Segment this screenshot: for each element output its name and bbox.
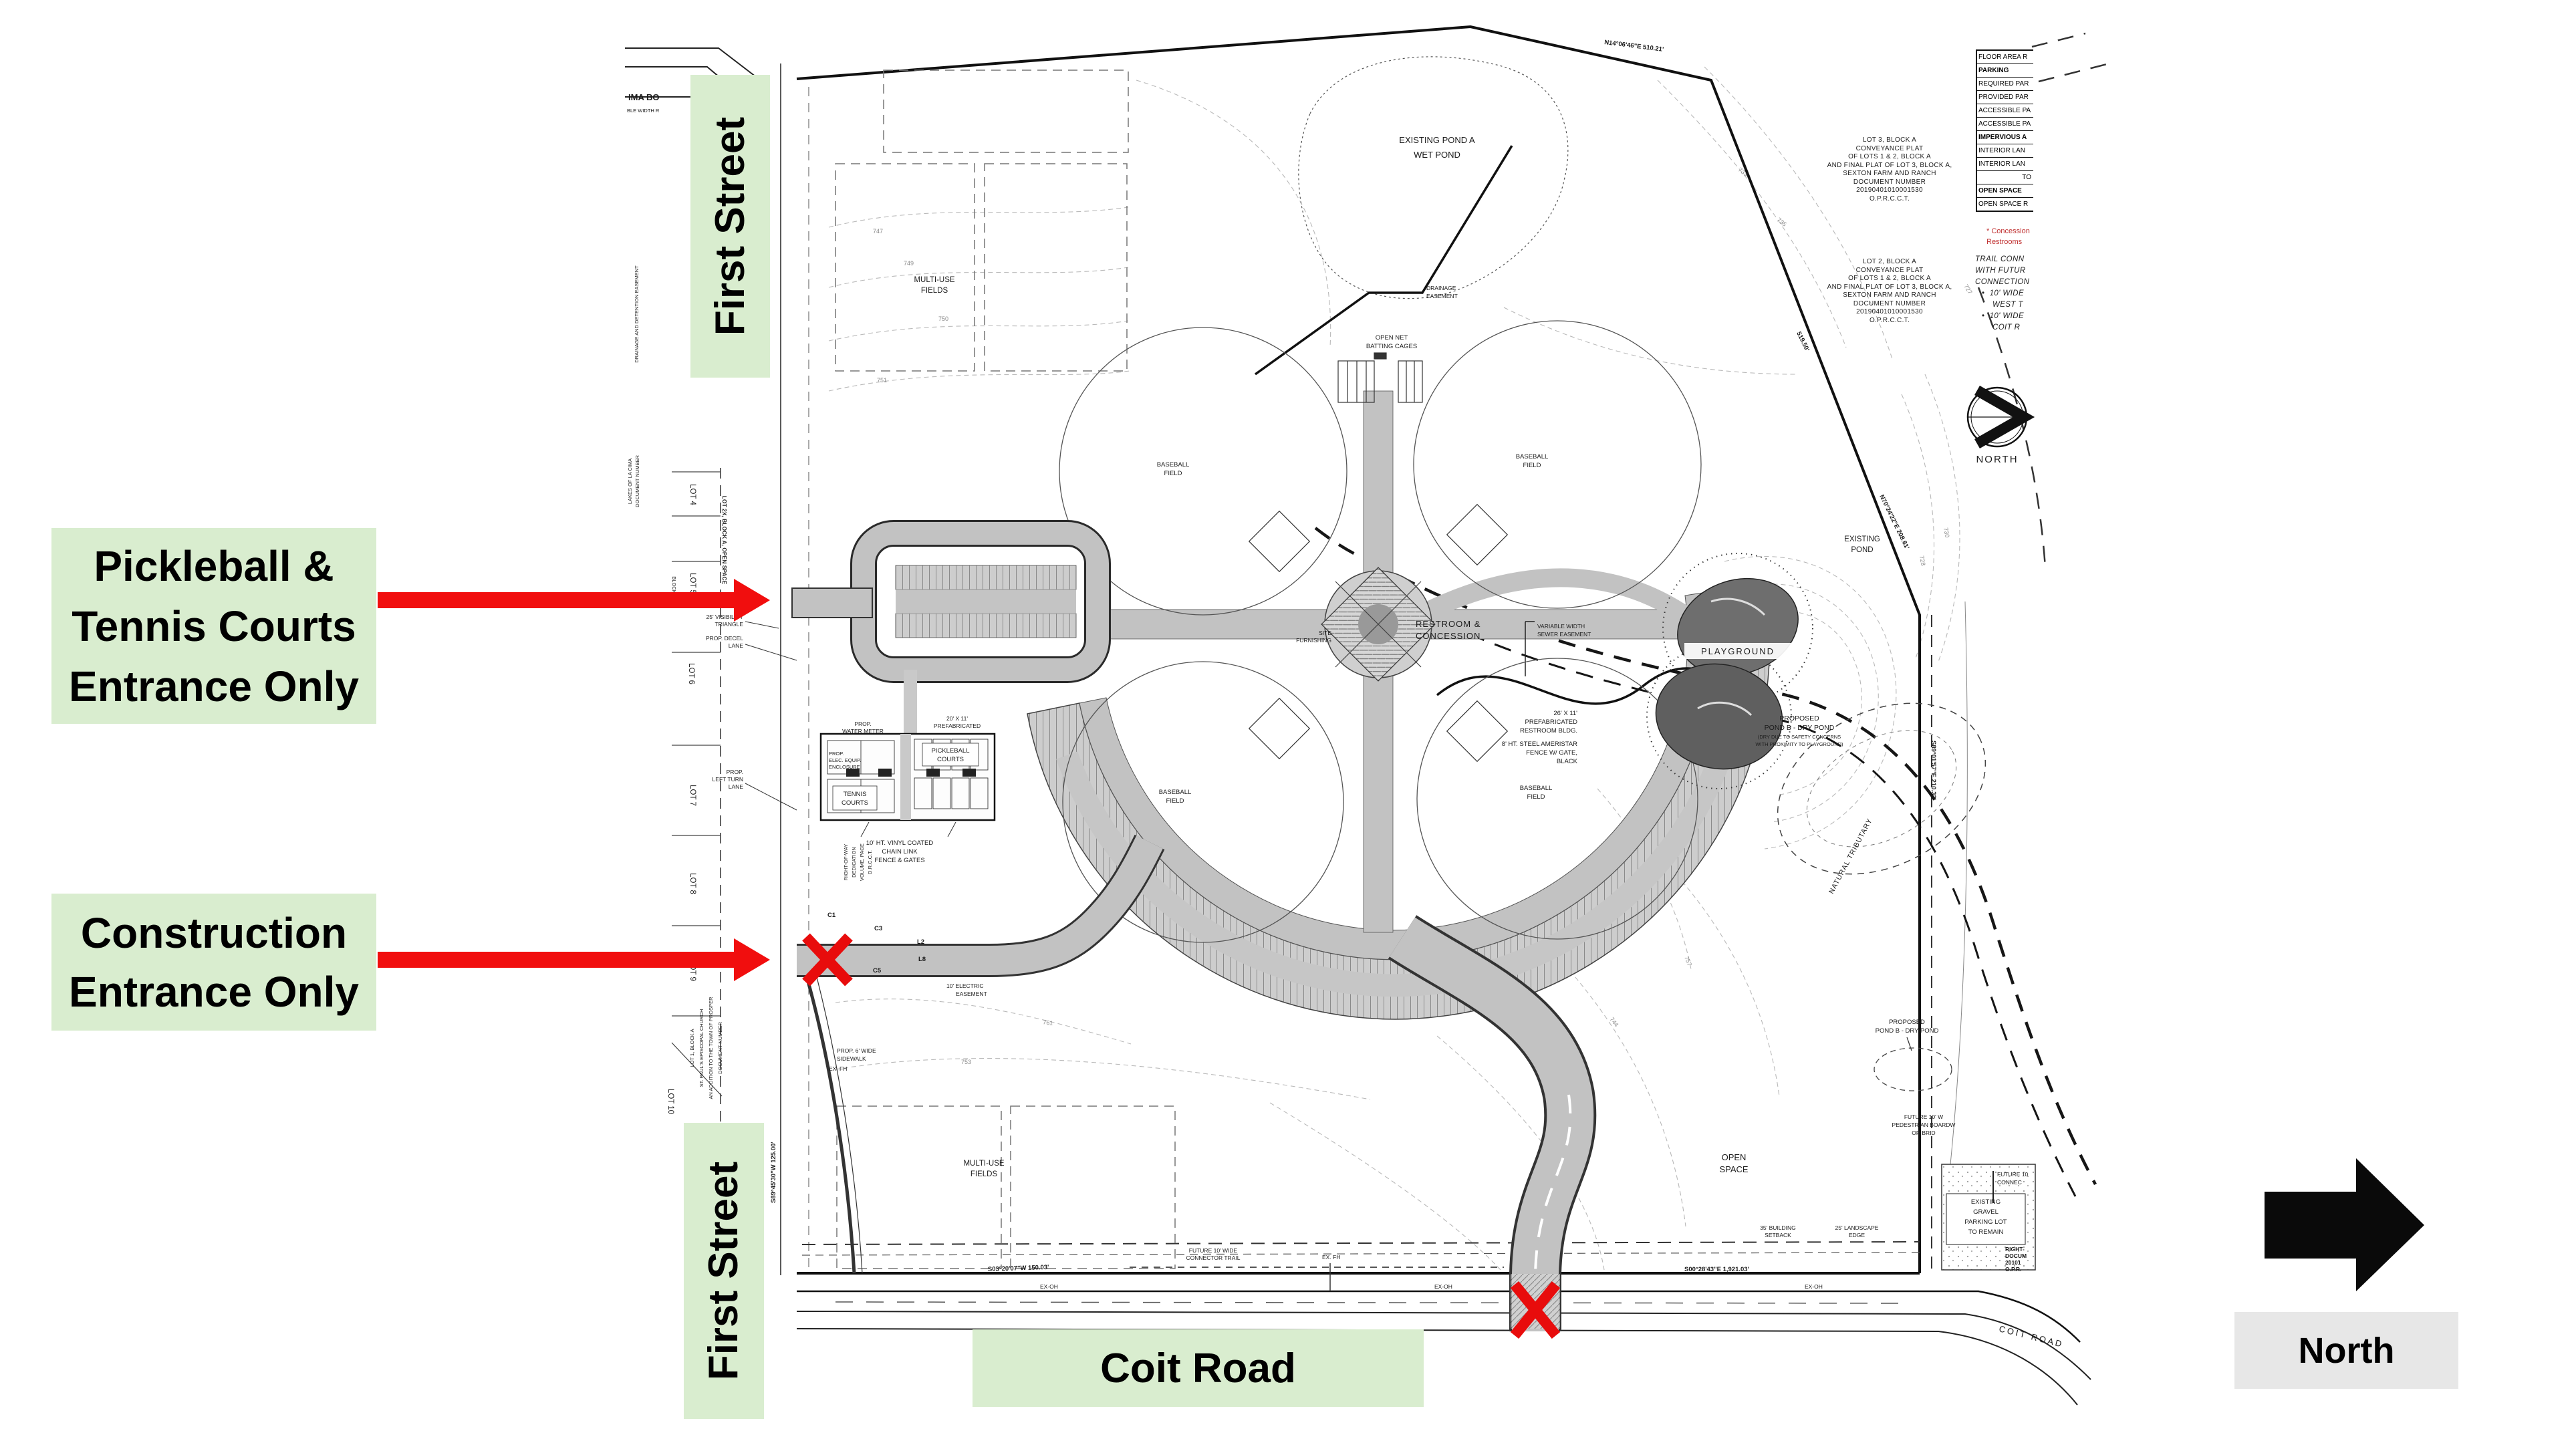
row-dedication-label: RIGHT-OF-WAY	[843, 844, 849, 881]
multi-use-label: FIELDS	[921, 287, 948, 295]
row-dedication-label: VOLUME, PAGE	[859, 843, 865, 881]
baseball-field-label: FIELD	[1164, 470, 1182, 477]
block-label: BLOCK	[671, 576, 677, 593]
boardwalk-note: OR BRID	[1912, 1130, 1935, 1136]
ameristar-fence-note: 8' HT. STEEL AMERISTAR	[1502, 741, 1577, 748]
tennis-courts-label: COURTS	[842, 799, 868, 807]
landscape-edge-label: 25' LANDSCAPE	[1835, 1224, 1879, 1231]
existing-pond-label: POND	[1851, 546, 1873, 554]
water-meter-note: WATER METER	[842, 728, 884, 735]
contour-label: 750	[938, 315, 948, 322]
pond-b-label: (DRY DUE TO SAFETY CONCERNS	[1758, 734, 1841, 740]
coit-road-label: Coit Road	[973, 1329, 1424, 1407]
building-setback-label: 35' BUILDING	[1760, 1224, 1796, 1231]
ameristar-fence-note: FENCE W/ GATE,	[1526, 749, 1577, 757]
lakes-label: DOCUMENT NUMBER	[634, 455, 640, 507]
existing-pond-east: EXISTING POND NATURAL TRIBUTARY	[1827, 535, 1880, 895]
restroom-bldg-note: RESTROOM BLDG.	[1520, 727, 1577, 735]
tennis-pickleball-courts: TENNIS COURTS PICKLEBALL COURTS PROP. WA…	[821, 715, 995, 864]
sidewalk-note: PROP. 6' WIDE	[837, 1047, 876, 1054]
lot-label: LOT 4	[688, 484, 696, 505]
contour-label: 757	[1683, 955, 1693, 967]
contour-label: 727	[1962, 283, 1973, 295]
row-dedication-label: DEDICATION	[851, 847, 857, 878]
table-row: PARKING	[1977, 64, 2033, 78]
baseball-field-label: BASEBALL	[1520, 785, 1553, 792]
restroom-concession-label: RESTROOM &	[1416, 619, 1480, 629]
table-row: REQUIRED PAR	[1977, 78, 2033, 91]
future-connector-note: FUTURE 10' WIDE	[1189, 1247, 1238, 1254]
boardwalk-note: FUTURE 10' W	[1904, 1113, 1943, 1120]
north-label: North	[2234, 1312, 2458, 1389]
lot-label: LOT 5	[688, 573, 696, 594]
open-space-label: SPACE	[1719, 1164, 1748, 1174]
future-connector-note: CONNECTOR TRAIL	[1186, 1255, 1241, 1261]
fence-note: CHAIN LINK	[882, 848, 918, 855]
restroom-bldg-note: PREFABRICATED	[1525, 718, 1578, 726]
contour-label: 728	[1918, 555, 1926, 567]
ex-oh-label: EX-OH	[1040, 1283, 1058, 1290]
gravel-lot-label: TO REMAIN	[1968, 1228, 2004, 1236]
table-row: OPEN SPACE	[1977, 184, 2033, 198]
ex-oh-label: EX-OH	[1434, 1283, 1452, 1290]
site-plan-drawing: 747 749 750 751 733 735 730 728 727 744 …	[0, 0, 2576, 1449]
contour-label: 735	[1776, 217, 1788, 228]
row-dedication-label: D.R.C.C.T.	[867, 850, 873, 874]
concession-note: * Concession Restrooms	[1986, 226, 2030, 247]
multi-use-label: MULTI-USE	[963, 1160, 1004, 1168]
elec-enclosure-note: PROP.	[829, 751, 844, 757]
landscape-edge-label: EDGE	[1849, 1232, 1865, 1238]
fire-hydrant-note: EX. FH	[829, 1065, 847, 1072]
future-connect-note: FUTURE 10	[1997, 1171, 2029, 1178]
natural-tributary-label: NATURAL TRIBUTARY	[1827, 817, 1874, 895]
pickleball-entrance-drive	[792, 588, 872, 618]
pickleball-entrance-label: Pickleball & Tennis Courts Entrance Only	[51, 528, 376, 724]
table-row: TO	[1977, 171, 2033, 184]
baseball-field-ne	[1414, 321, 1701, 608]
courts-parking	[792, 533, 1098, 734]
bearing-s89w: S89°45'30"W 125.00'	[770, 1142, 777, 1203]
proposed-pond-south: PROPOSED POND B - DRY POND	[1874, 1019, 1952, 1091]
curve-label: C1	[827, 912, 836, 919]
contour-label: 751	[877, 377, 887, 384]
drainage-easement-label: DRAINAGE	[1426, 285, 1456, 291]
site-furnishing-label: FURNISHING	[1296, 637, 1331, 644]
contour-label: 761	[1043, 1019, 1053, 1027]
table-row: INTERIOR LAN	[1977, 144, 2033, 158]
partial-text-top-left: BLE WIDTH R	[627, 108, 660, 114]
restroom-bldg-note: 26' X 11'	[1553, 710, 1577, 717]
curve-label: L2	[917, 938, 924, 946]
contour-label: 749	[904, 260, 914, 267]
bearing-519: 519.50'	[1795, 330, 1811, 352]
gravel-lot-label: PARKING LOT	[1964, 1218, 2007, 1226]
north-symbol-icon: NORTH	[1968, 388, 2027, 465]
sewer-easement-label: SEWER EASEMENT	[1537, 631, 1591, 638]
site-plan-slide: 747 749 750 751 733 735 730 728 727 744 …	[0, 0, 2576, 1449]
bearing-s03: S03°20'07"W 150.03'	[988, 1264, 1049, 1273]
table-row: ACCESSIBLE PA	[1977, 104, 2033, 118]
st-pauls-label: LOT 1, BLOCK A	[689, 1029, 695, 1067]
pond-a-label: EXISTING POND A	[1399, 135, 1475, 145]
partial-text-top-left: IMA BO	[628, 92, 659, 102]
lot-label: LOT 9	[688, 960, 696, 981]
contour-label: 747	[873, 228, 883, 235]
multi-use-label: MULTI-USE	[914, 276, 954, 284]
baseball-field-label: BASEBALL	[1516, 453, 1549, 460]
baseball-field-label: BASEBALL	[1157, 461, 1190, 469]
table-row: OPEN SPACE R	[1977, 198, 2033, 211]
lot-label: LOT 10	[666, 1089, 674, 1114]
drainage-detention-label: DRAINAGE AND DETENTION EASEMENT	[634, 265, 640, 363]
contour-label: 730	[1942, 527, 1950, 539]
site-data-table: FLOOR AREA R PARKING REQUIRED PAR PROVID…	[1976, 49, 2033, 212]
pond-a-label: WET POND	[1414, 150, 1460, 160]
row-doc-note: DOCUM	[2005, 1253, 2027, 1259]
coit-road-plan-label: COIT ROAD	[1998, 1323, 2065, 1349]
north-symbol-label: NORTH	[1976, 454, 2018, 465]
table-row: INTERIOR LAN	[1977, 158, 2033, 171]
pickleball-courts-label: COURTS	[937, 756, 964, 763]
contour-label: 744	[1608, 1016, 1620, 1028]
elec-enclosure-note: ELEC. EQUIP.	[829, 757, 861, 763]
visibility-note: TRIANGLE	[715, 621, 743, 628]
fire-hydrant-note: EX. FH	[1322, 1254, 1340, 1261]
curve-label: L8	[918, 956, 926, 963]
curve-label: C3	[874, 925, 882, 932]
st-pauls-label: ST. PAUL'S EPISCOPAL CHURCH	[698, 1009, 704, 1087]
open-space-label: OPEN	[1722, 1152, 1747, 1162]
fence-note: FENCE & GATES	[874, 857, 924, 864]
building-setback-label: SETBACK	[1765, 1232, 1791, 1238]
playground-label: PLAYGROUND	[1701, 646, 1775, 656]
multi-use-label: FIELDS	[971, 1170, 998, 1178]
lot-label: LOT 8	[688, 873, 696, 894]
drainage-easement-label: EASEMENT	[1426, 293, 1458, 299]
st-pauls-label: AN ADDITION TO THE TOWN OF PROSPER	[708, 997, 714, 1099]
baseball-field-label: FIELD	[1523, 462, 1541, 469]
baseball-field-label: FIELD	[1527, 793, 1545, 801]
trail-connection-note: TRAIL CONN WITH FUTUR CONNECTION 10' WID…	[1975, 254, 2034, 334]
pickleball-courts-label: PICKLEBALL	[931, 747, 969, 755]
batting-cages-label: BATTING CAGES	[1366, 343, 1417, 350]
existing-pond-label: EXISTING	[1844, 535, 1880, 543]
left-turn-note: LEFT TURN	[713, 776, 743, 783]
gravel-lot-label: EXISTING	[1971, 1198, 2001, 1206]
row-doc-note: O.P.R.	[2005, 1266, 2021, 1273]
construction-entrance-drive: 10' ELECTRIC EASEMENT PROP. 6' WIDE SIDE…	[797, 842, 1150, 1273]
baseball-field-label: BASEBALL	[1159, 789, 1192, 796]
curve-label: C5	[873, 967, 882, 974]
restroom-concession-label: CONCESSION	[1416, 631, 1480, 641]
st-pauls-label: DOCUMENT NUMBER	[717, 1022, 723, 1074]
table-row: IMPERVIOUS A	[1977, 131, 2033, 144]
site-furnishing-label: SITE	[1319, 630, 1331, 636]
lot2x-label: LOT 2X, BLOCK A, OPEN SPACE	[721, 496, 728, 585]
tennis-courts-label: TENNIS	[844, 791, 867, 798]
row-doc-note: RIGHT-	[2005, 1246, 2025, 1253]
water-meter-note: PROP.	[854, 720, 871, 727]
lot-label: LOT 7	[688, 785, 696, 806]
sidewalk-note: SIDEWALK	[837, 1055, 866, 1062]
bearing-n14: N14°06'46"E 510.21'	[1604, 39, 1664, 53]
table-row: ACCESSIBLE PA	[1977, 118, 2033, 131]
left-turn-note: PROP.	[727, 769, 743, 775]
elec-enclosure-note: ENCLOSURE	[829, 764, 860, 770]
pond-b-label: PROPOSED	[1779, 714, 1819, 722]
decel-note: LANE	[729, 642, 744, 649]
bearing-s89e: S89°01'57"E 210.32'	[1930, 741, 1937, 800]
electric-easement-note: EASEMENT	[956, 991, 987, 997]
first-street-label-bottom: First Street	[684, 1123, 764, 1419]
future-connect-note: CONNEC	[1997, 1179, 2022, 1186]
sewer-easement-label: VARIABLE WIDTH	[1537, 623, 1585, 630]
gravel-lot-label: GRAVEL	[1973, 1208, 1999, 1216]
first-street-label-top: First Street	[690, 75, 770, 378]
bearing-s00: S00°28'43"E 1,921.03'	[1684, 1266, 1749, 1273]
lot-label: LOT 6	[687, 663, 695, 684]
electric-easement-note: 10' ELECTRIC	[946, 982, 983, 989]
contour-label: 753	[961, 1059, 971, 1065]
lot3-plat-note: LOT 3, BLOCK A CONVEYANCE PLAT OF LOTS 1…	[1819, 136, 1960, 203]
ameristar-fence-note: BLACK	[1557, 758, 1578, 765]
lakes-label: LAKES OF LA CIMA	[627, 458, 633, 504]
baseball-field-label: FIELD	[1166, 797, 1184, 805]
pond-south-label: POND B - DRY POND	[1876, 1027, 1939, 1035]
lot2-plat-note: LOT 2, BLOCK A CONVEYANCE PLAT OF LOTS 1…	[1819, 258, 1960, 325]
row-doc-note: 20101	[2005, 1259, 2021, 1266]
pond-south-label: PROPOSED	[1889, 1019, 1925, 1026]
table-row: PROVIDED PAR	[1977, 91, 2033, 104]
visibility-note: 25' VISIBILITY	[706, 614, 744, 620]
fence-note: 10' HT. VINYL COATED	[866, 839, 934, 847]
decel-note: PROP. DECEL	[706, 635, 743, 642]
left-turn-note: LANE	[729, 783, 744, 790]
table-row: FLOOR AREA R	[1977, 51, 2033, 64]
restroom-bldg-20-note: 20' X 11'	[946, 715, 968, 722]
ex-oh-label: EX-OH	[1805, 1283, 1823, 1290]
batting-cages-label: OPEN NET	[1376, 334, 1408, 342]
pond-b-label: WITH PROXIMITY TO PLAYGROUND)	[1755, 741, 1843, 747]
existing-pond-a: EXISTING POND A WET POND DRAINAGE EASEME…	[1255, 57, 1568, 374]
boardwalk-note: PEDESTRIAN BOARDW	[1892, 1122, 1956, 1128]
construction-entrance-label: Construction Entrance Only	[51, 894, 376, 1031]
pond-b-label: POND B - DRY POND	[1765, 724, 1835, 732]
restroom-bldg-20-note: PREFABRICATED	[934, 722, 981, 729]
